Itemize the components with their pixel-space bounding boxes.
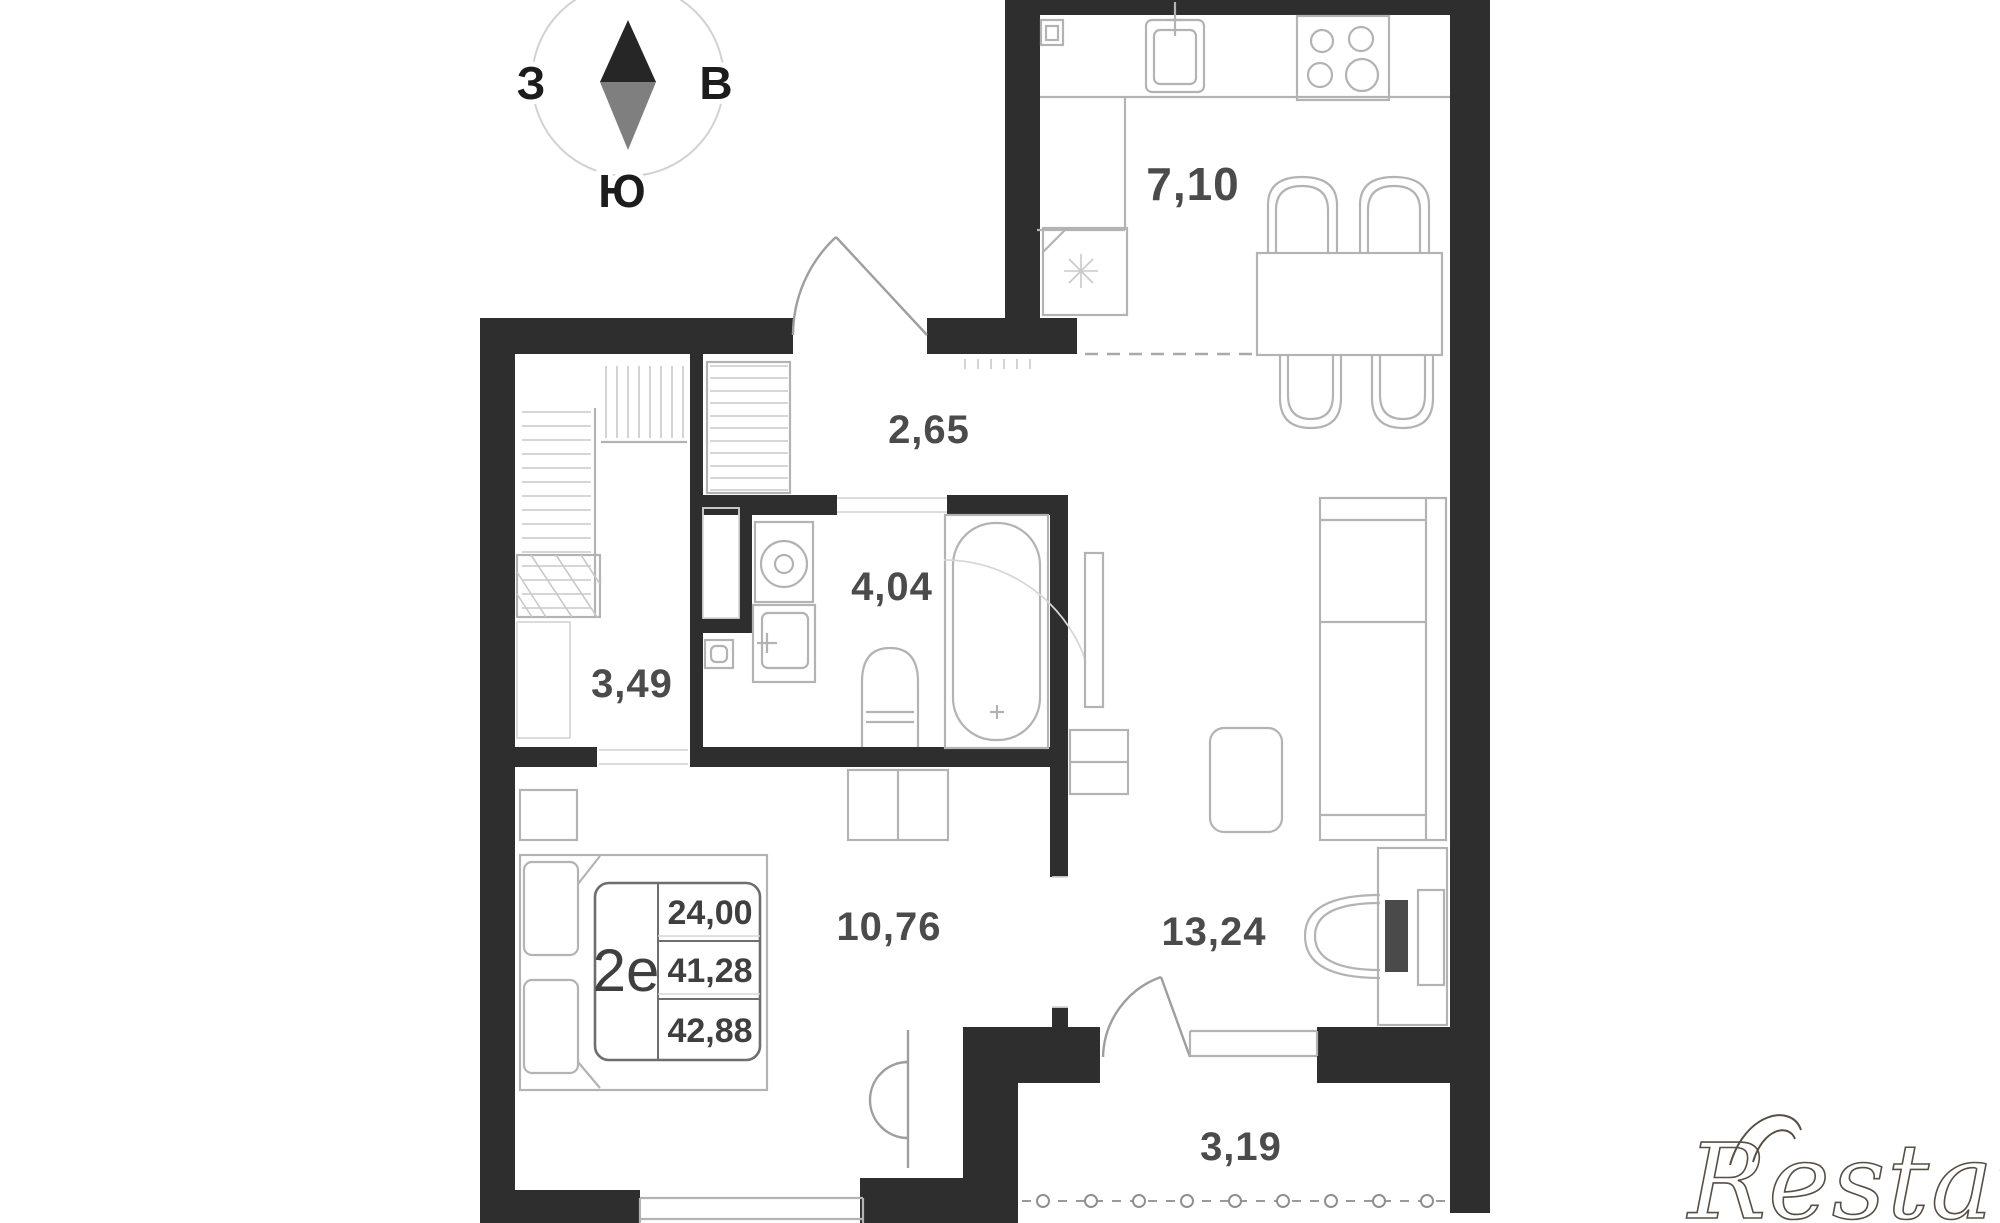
floor-drain-icon [705, 640, 733, 668]
interior-door-icon [944, 553, 1103, 707]
room-label-balcony: 3,19 [1200, 1125, 1282, 1169]
desk-chair [1305, 895, 1380, 978]
hallway-wardrobe [707, 362, 790, 493]
bathtub-icon [945, 515, 1048, 748]
vent-shaft-icon [1041, 20, 1063, 45]
entry-door-icon [793, 237, 927, 335]
dresser [848, 770, 948, 840]
closet-open-shelf [517, 622, 570, 738]
closet-shelf-edges [595, 408, 687, 618]
wall-kitchen-left [1005, 0, 1040, 318]
balcony-window [1190, 1031, 1317, 1056]
plan-type-label: 2е [593, 937, 660, 1004]
desk [1378, 848, 1447, 1025]
wall-kitchen-top [1005, 0, 1490, 15]
wall-entry-segment [927, 318, 1077, 354]
room-label-bedroom: 10,76 [836, 905, 941, 949]
room-label-living: 13,24 [1161, 910, 1266, 954]
balcony: 3,19 [1022, 977, 1450, 1207]
wall-bedroom-bottom-right [860, 1178, 1018, 1223]
kitchen: 7,10 [1037, 2, 1450, 428]
wall-bath-top-left [690, 495, 837, 515]
compass-south-label: Ю [598, 165, 645, 217]
wall-left-exterior [480, 318, 515, 1223]
wall-bedroom-door-stub [1052, 1007, 1068, 1027]
compass-west-label: З [517, 57, 546, 109]
duct-niche [703, 508, 739, 618]
bedroom-window [640, 1198, 863, 1223]
pillow [524, 862, 578, 955]
kitchen-sink-icon [1146, 2, 1204, 92]
tv-cabinet [1070, 730, 1128, 794]
area-total: 42,88 [667, 1012, 752, 1050]
wall-closet-bottom [515, 747, 597, 767]
wall-bath-right [1050, 495, 1068, 877]
bathroom-door-threshold [837, 498, 947, 512]
vent-shaft-inner [1046, 26, 1058, 40]
pillow [524, 980, 578, 1073]
washing-machine-icon [755, 522, 813, 602]
wall-living-bottom [1317, 1027, 1450, 1083]
nightstand [520, 790, 577, 840]
balcony-door-icon [1103, 977, 1190, 1057]
entry-threshold-ticks [965, 359, 1030, 369]
dining-table [1257, 253, 1442, 355]
room-label-closet: 3,49 [591, 662, 673, 706]
kitchen-counter [1037, 97, 1450, 230]
dining-chairs [1268, 177, 1433, 428]
closet-door-threshold [599, 750, 688, 764]
wall-top-left [480, 318, 793, 354]
closet-rail-hatch-top [606, 366, 683, 438]
monitor-icon [1385, 900, 1408, 972]
coffee-table [1210, 728, 1282, 832]
watermark-text: Restate [1686, 1121, 2000, 1223]
area-living: 24,00 [667, 894, 752, 932]
balcony-railing [1022, 1195, 1450, 1207]
sofa [1320, 498, 1446, 840]
wall-right-exterior [1450, 0, 1490, 1213]
wall-closet-bath-divider [690, 352, 703, 767]
wall-duct-bottom [695, 618, 752, 633]
wall-duct-right [739, 508, 752, 633]
compass-needle-north-icon [600, 20, 656, 82]
compass-east-label: В [699, 57, 732, 109]
compass-needle-south-icon [600, 82, 656, 150]
fridge-icon [1043, 228, 1127, 315]
wall-bath-top-right [947, 495, 1068, 515]
closet-shelf-hatch-left [522, 412, 591, 608]
room-label-kitchen: 7,10 [1146, 158, 1240, 210]
bathroom-sink-icon [753, 605, 815, 682]
wall-bath-bottom [690, 747, 1060, 767]
watermark: Restate [1686, 1115, 2000, 1223]
room-label-hallway: 2,65 [888, 408, 970, 452]
floor-plan-drawing: З В Ю [0, 0, 2000, 1223]
closet: 3,49 [517, 366, 687, 738]
room-label-bathroom: 4,04 [851, 565, 933, 609]
apartment-info-box: 2е 24,00 41,28 42,88 [593, 883, 760, 1060]
hallway: 2,65 [707, 237, 1030, 493]
floor-plan: З В Ю [0, 0, 2000, 1223]
toilet-icon [862, 648, 918, 747]
wall-bedroom-bottom-left [480, 1190, 640, 1223]
compass: З В Ю [517, 0, 733, 217]
area-apartment: 41,28 [667, 952, 752, 990]
stove-icon [1297, 16, 1389, 100]
bathroom: 4,04 [703, 498, 1048, 748]
